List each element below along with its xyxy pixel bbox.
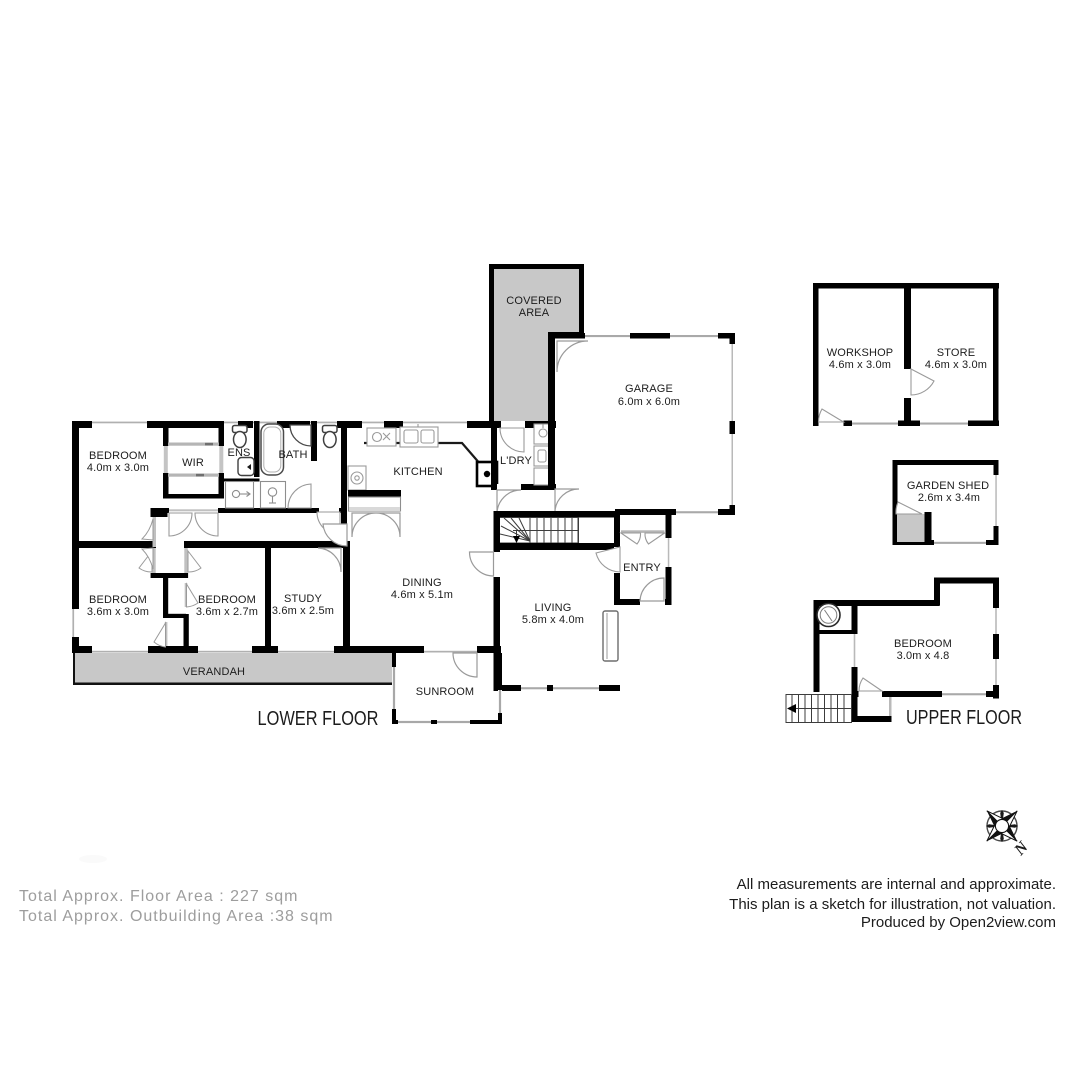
svg-text:BATH: BATH — [278, 449, 307, 461]
svg-text:GARDEN SHED: GARDEN SHED — [907, 480, 989, 492]
svg-text:ENTRY: ENTRY — [623, 562, 661, 574]
svg-text:BEDROOM: BEDROOM — [198, 594, 256, 606]
svg-text:4.6m x 3.0m: 4.6m x 3.0m — [925, 359, 987, 371]
svg-text:4.6m x 5.1m: 4.6m x 5.1m — [391, 589, 453, 601]
svg-text:COVERED: COVERED — [506, 295, 561, 307]
svg-text:VERANDAH: VERANDAH — [183, 666, 245, 678]
svg-text:SUNROOM: SUNROOM — [416, 686, 475, 698]
svg-text:This plan is a sketch for illu: This plan is a sketch for illustration, … — [729, 896, 1056, 913]
svg-text:Total Approx. Outbuilding Area: Total Approx. Outbuilding Area :38 sqm — [19, 908, 334, 925]
svg-text:ENS: ENS — [227, 447, 250, 459]
svg-text:5.8m x 4.0m: 5.8m x 4.0m — [522, 614, 584, 626]
svg-text:Total Approx. Floor Area : 227: Total Approx. Floor Area : 227 sqm — [19, 888, 298, 905]
svg-text:LIVING: LIVING — [535, 602, 572, 614]
svg-text:4.0m x 3.0m: 4.0m x 3.0m — [87, 462, 149, 474]
svg-text:WIR: WIR — [182, 457, 204, 469]
svg-text:GARAGE: GARAGE — [625, 383, 673, 395]
svg-text:WORKSHOP: WORKSHOP — [827, 347, 894, 359]
svg-text:BEDROOM: BEDROOM — [89, 594, 147, 606]
svg-text:KITCHEN: KITCHEN — [393, 466, 442, 478]
svg-text:3.6m x 2.7m: 3.6m x 2.7m — [196, 606, 258, 618]
svg-text:3.0m x 4.8: 3.0m x 4.8 — [897, 650, 950, 662]
svg-text:LOWER FLOOR: LOWER FLOOR — [258, 708, 379, 730]
svg-text:Produced by Open2view.com: Produced by Open2view.com — [861, 914, 1056, 931]
svg-text:2.6m x 3.4m: 2.6m x 3.4m — [918, 492, 980, 504]
svg-text:3.6m x 3.0m: 3.6m x 3.0m — [87, 606, 149, 618]
svg-text:STORE: STORE — [937, 347, 975, 359]
svg-text:BEDROOM: BEDROOM — [89, 450, 147, 462]
svg-text:DINING: DINING — [402, 577, 441, 589]
svg-text:BEDROOM: BEDROOM — [894, 638, 952, 650]
svg-text:6.0m x 6.0m: 6.0m x 6.0m — [618, 396, 680, 408]
svg-text:4.6m x 3.0m: 4.6m x 3.0m — [829, 359, 891, 371]
svg-text:AREA: AREA — [519, 307, 550, 319]
svg-text:UPPER FLOOR: UPPER FLOOR — [906, 707, 1022, 729]
svg-text:STUDY: STUDY — [284, 593, 323, 605]
svg-text:All measurements are internal: All measurements are internal and approx… — [737, 876, 1056, 893]
svg-text:3.6m x 2.5m: 3.6m x 2.5m — [272, 605, 334, 617]
svg-text:L'DRY: L'DRY — [500, 455, 533, 467]
